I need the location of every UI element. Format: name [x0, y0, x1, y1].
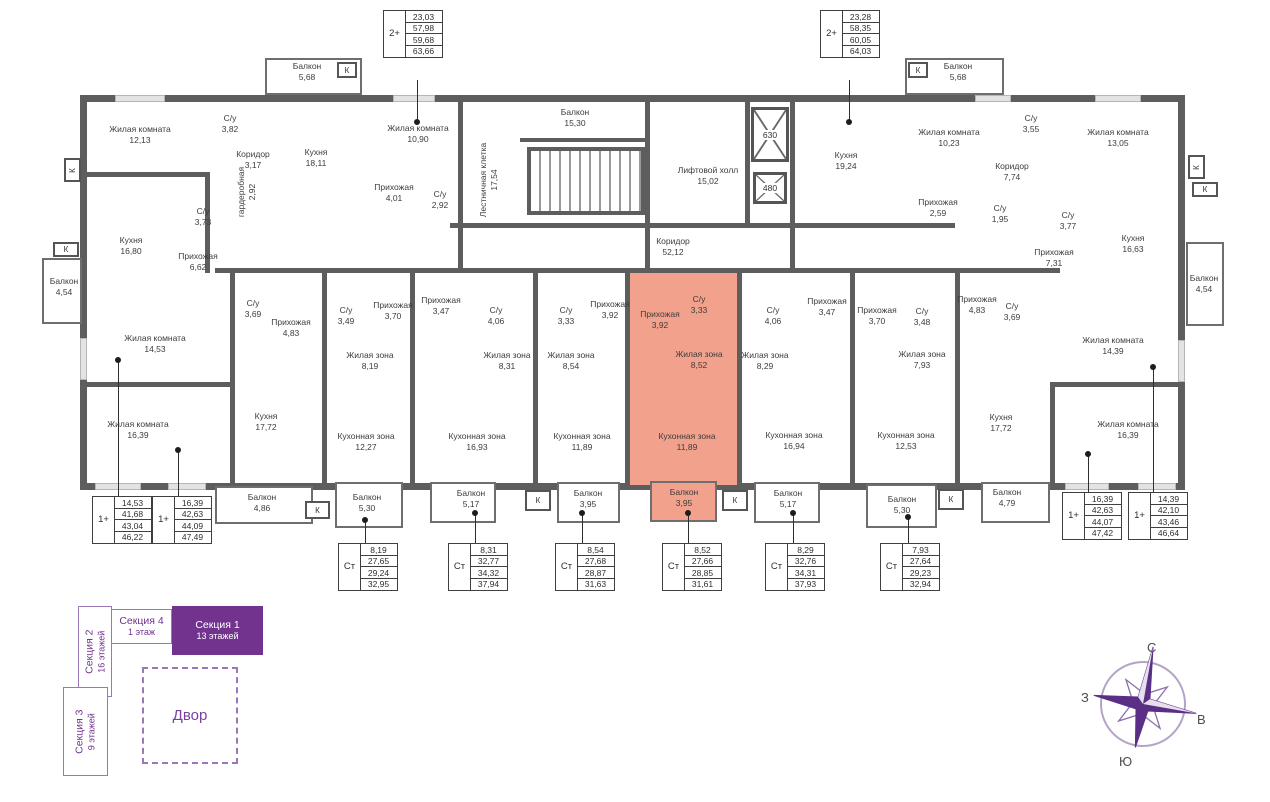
- wall: [450, 223, 955, 228]
- room-area: 16,39: [1097, 430, 1158, 441]
- section-floors: 1 этаж: [128, 627, 155, 637]
- room-kitchen-zone: Кухонная зона16,94: [765, 430, 822, 452]
- ac-unit-label: К: [536, 496, 541, 505]
- room-living-zone: Жилая зона8,29: [741, 350, 788, 372]
- room-name: Жилая комната: [107, 419, 168, 430]
- room-name: Кухня: [255, 411, 278, 422]
- ac-unit-label: К: [64, 245, 69, 254]
- room-area: 3,95: [574, 499, 603, 510]
- room-name: Лестничная клетка: [478, 143, 489, 217]
- leader-line: [417, 80, 418, 122]
- room-area: 4,06: [765, 316, 782, 327]
- room-area: 12,13: [109, 135, 170, 146]
- room-wc: С/у4,06: [765, 305, 782, 327]
- card-value: 46,64: [1150, 527, 1188, 540]
- ac-unit-label: К: [315, 506, 320, 515]
- room-kitchen: Кухня16,80: [120, 235, 143, 257]
- wall: [458, 95, 463, 270]
- window: [1095, 95, 1141, 102]
- room-area: 3,47: [421, 306, 460, 317]
- room-area: 7,31: [1034, 258, 1073, 269]
- ac-unit-label: К: [916, 66, 921, 75]
- leader-dot: [685, 510, 691, 516]
- window: [393, 95, 435, 102]
- room-living-2: Жилая комната10,90: [387, 123, 448, 145]
- room-name: Прихожая: [807, 296, 846, 307]
- wall: [790, 95, 795, 270]
- room-area: 8,52: [675, 360, 722, 371]
- room-area: 15,30: [561, 118, 590, 129]
- room-area: 3,33: [558, 316, 575, 327]
- leader-line: [849, 80, 850, 122]
- room-balcony: Балкон5,30: [888, 494, 917, 516]
- card-type: 1+: [92, 496, 115, 544]
- room-area: 13,05: [1087, 138, 1148, 149]
- room-name: Кухонная зона: [658, 431, 715, 442]
- room-area: 16,39: [107, 430, 168, 441]
- room-area: 3,77: [1060, 221, 1077, 232]
- room-area: 4,83: [271, 328, 310, 339]
- section-name: Секция 4: [119, 615, 163, 628]
- compass-north-label: С: [1147, 640, 1156, 655]
- card-type: 2+: [383, 10, 406, 58]
- ac-unit-box: К: [53, 242, 79, 257]
- room-area: 3,95: [670, 498, 699, 509]
- room-name: Жилая комната: [918, 127, 979, 138]
- room-area: 8,54: [547, 361, 594, 372]
- room-area: 14,39: [1082, 346, 1143, 357]
- room-area: 5,68: [944, 72, 973, 83]
- room-area: 3,33: [691, 305, 708, 316]
- compass-west-label: З: [1081, 690, 1089, 705]
- room-area: 5,30: [888, 505, 917, 516]
- room-area: 3,82: [222, 124, 239, 135]
- room-wc: С/у2,92: [432, 189, 449, 211]
- room-hall: Прихожая3,70: [857, 305, 896, 327]
- card-value: 31,61: [684, 578, 722, 591]
- site-section-1-active[interactable]: Секция 113 этажей: [172, 606, 263, 655]
- room-name: С/у: [691, 294, 708, 305]
- room-balcony: Балкон3,95: [574, 488, 603, 510]
- window: [975, 95, 1011, 102]
- leader-line: [365, 520, 366, 545]
- room-area: 52,12: [656, 247, 690, 258]
- room-area: 12,53: [877, 441, 934, 452]
- room-area: 17,72: [990, 423, 1013, 434]
- room-kitchen: Кухня19,24: [835, 150, 858, 172]
- room-hall: Прихожая3,92: [590, 299, 629, 321]
- window: [115, 95, 165, 102]
- room-main-corridor: Коридор52,12: [656, 236, 690, 258]
- room-name: Прихожая: [1034, 247, 1073, 258]
- compass-rose: С В Ю З: [1075, 632, 1225, 782]
- room-name: Жилая комната: [1097, 419, 1158, 430]
- room-area: 11,89: [553, 442, 610, 453]
- room-area: 6,62: [178, 262, 217, 273]
- room-area: 19,24: [835, 161, 858, 172]
- room-area: 4,54: [1190, 284, 1219, 295]
- card-1plus-br2[interactable]: 1+14,3942,1043,4646,64: [1128, 492, 1188, 540]
- room-area: 4,83: [957, 305, 996, 316]
- floor-plan-canvas: К К К К К К К К К К 630 480 Жилая комнат…: [0, 0, 1270, 802]
- room-living: Жилая комната16,39: [107, 419, 168, 441]
- room-name: Кухня: [835, 150, 858, 161]
- window: [80, 338, 87, 380]
- compass-east-label: В: [1197, 712, 1206, 727]
- room-wc: С/у3,69: [245, 298, 262, 320]
- room-wc: С/у3,49: [338, 305, 355, 327]
- room-area: 2,92: [247, 167, 258, 217]
- site-section-3[interactable]: Секция 39 этажей: [63, 687, 108, 776]
- room-name: Прихожая: [373, 300, 412, 311]
- room-wc: С/у3,82: [222, 113, 239, 135]
- leader-dot: [115, 357, 121, 363]
- room-name: Прихожая: [957, 294, 996, 305]
- room-name: Балкон: [457, 488, 486, 499]
- room-name: Балкон: [993, 487, 1022, 498]
- ac-unit-box: К: [337, 62, 357, 78]
- room-area: 4,06: [488, 316, 505, 327]
- room-living: Жилая комната16,39: [1097, 419, 1158, 441]
- wall: [215, 268, 1060, 273]
- courtyard-label: Двор: [173, 707, 208, 725]
- room-name: Жилая зона: [346, 350, 393, 361]
- card-studio-1[interactable]: Ст8,1927,6529,2432,95: [338, 543, 398, 591]
- room-name: Балкон: [944, 61, 973, 72]
- elevator-small: 480: [753, 172, 787, 204]
- room-name: С/у: [1023, 113, 1040, 124]
- room-name: Кухня: [305, 147, 328, 158]
- card-value: 32,95: [360, 578, 398, 591]
- ac-unit-label: К: [1192, 165, 1201, 170]
- room-area: 17,54: [489, 143, 500, 217]
- room-area: 10,90: [387, 134, 448, 145]
- room-kitchen-zone-selected: Кухонная зона11,89: [658, 431, 715, 453]
- room-area: 16,93: [448, 442, 505, 453]
- card-1plus-br1[interactable]: 1+16,3942,6344,0747,42: [1062, 492, 1122, 540]
- room-kitchen-zone: Кухонная зона16,93: [448, 431, 505, 453]
- room-living-1: Жилая комната12,13: [109, 124, 170, 146]
- room-area: 12,27: [337, 442, 394, 453]
- room-name: Кухонная зона: [337, 431, 394, 442]
- room-name: С/у: [914, 306, 931, 317]
- room-name: Кухонная зона: [877, 430, 934, 441]
- room-name: Коридор: [995, 161, 1029, 172]
- room-name: Балкон: [670, 487, 699, 498]
- room-wc-selected: С/у3,33: [691, 294, 708, 316]
- card-studio-6[interactable]: Ст7,9327,6429,2332,94: [880, 543, 940, 591]
- room-name: Балкон: [353, 492, 382, 503]
- room-wc: С/у3,48: [914, 306, 931, 328]
- section-name: Секция 3: [74, 709, 87, 753]
- window: [1138, 483, 1176, 490]
- card-studio-2[interactable]: Ст8,3132,7734,3237,94: [448, 543, 508, 591]
- site-section-2[interactable]: Секция 216 этажей: [78, 606, 112, 697]
- room-staircase: Лестничная клетка17,54: [478, 143, 500, 217]
- room-name: Прихожая: [857, 305, 896, 316]
- room-hall: Прихожая3,47: [421, 295, 460, 317]
- room-area: 8,19: [346, 361, 393, 372]
- room-name: Кухня: [1122, 233, 1145, 244]
- room-hall-selected: Прихожая3,92: [640, 309, 679, 331]
- ac-unit-box: К: [525, 490, 551, 511]
- room-area: 4,01: [374, 193, 413, 204]
- room-area: 5,30: [353, 503, 382, 514]
- leader-dot: [472, 510, 478, 516]
- leader-line: [582, 513, 583, 545]
- elevator-large: 630: [751, 107, 789, 162]
- card-type: Ст: [448, 543, 471, 591]
- room-name: Кухонная зона: [448, 431, 505, 442]
- room-living-zone: Жилая зона7,93: [898, 349, 945, 371]
- room-name: Жилая комната: [124, 333, 185, 344]
- leader-dot: [905, 514, 911, 520]
- room-area: 16,63: [1122, 244, 1145, 255]
- room-area: 16,80: [120, 246, 143, 257]
- room-kitchen-zone: Кухонная зона11,89: [553, 431, 610, 453]
- leader-dot: [579, 510, 585, 516]
- ac-unit-box: К: [722, 490, 748, 511]
- room-area: 3,55: [1023, 124, 1040, 135]
- card-value: 64,03: [842, 45, 880, 58]
- room-name: Жилая зона: [898, 349, 945, 360]
- room-living: Жилая комната13,05: [1087, 127, 1148, 149]
- card-value: 47,42: [1084, 527, 1122, 540]
- ac-unit-label: К: [68, 168, 77, 173]
- room-wc: С/у1,95: [992, 203, 1009, 225]
- card-studio-3[interactable]: Ст8,5427,6828,8731,63: [555, 543, 615, 591]
- room-area: 5,17: [457, 499, 486, 510]
- leader-line: [178, 450, 179, 497]
- card-studio-5[interactable]: Ст8,2932,7634,3137,93: [765, 543, 825, 591]
- room-name: Балкон: [248, 492, 277, 503]
- room-area: 3,92: [640, 320, 679, 331]
- window: [1178, 340, 1185, 382]
- window: [168, 483, 206, 490]
- room-name: Коридор: [236, 149, 270, 160]
- room-hall: Прихожая2,59: [918, 197, 957, 219]
- card-value: 63,66: [405, 45, 443, 58]
- room-living: Жилая комната14,53: [124, 333, 185, 355]
- room-area: 8,31: [483, 361, 530, 372]
- room-name: Жилая комната: [1087, 127, 1148, 138]
- room-name: Прихожая: [271, 317, 310, 328]
- wall: [850, 268, 855, 486]
- card-type: 1+: [152, 496, 175, 544]
- window: [1065, 483, 1109, 490]
- card-value: 47,49: [174, 531, 212, 544]
- section-name: Секция 1: [195, 619, 239, 632]
- room-hall: Прихожая4,01: [374, 182, 413, 204]
- room-balcony: Балкон4,54: [1190, 273, 1219, 295]
- wall: [520, 138, 647, 142]
- leader-line: [118, 360, 119, 497]
- room-name: Кухня: [990, 412, 1013, 423]
- leader-dot: [1085, 451, 1091, 457]
- room-area: 16,94: [765, 441, 822, 452]
- room-name: С/у: [488, 305, 505, 316]
- wall: [737, 268, 742, 486]
- section-name: Секция 2: [83, 629, 96, 673]
- room-balcony: Балкон5,68: [293, 61, 322, 83]
- site-courtyard: Двор: [142, 667, 238, 764]
- room-kitchen: Кухня16,63: [1122, 233, 1145, 255]
- room-area: 5,17: [774, 499, 803, 510]
- ac-unit-box: К: [1192, 182, 1218, 197]
- room-name: Кухонная зона: [553, 431, 610, 442]
- room-kitchen: Кухня17,72: [255, 411, 278, 433]
- room-area: 3,92: [590, 310, 629, 321]
- room-area: 7,93: [898, 360, 945, 371]
- room-balcony: Балкон4,54: [50, 276, 79, 298]
- room-name: С/у: [992, 203, 1009, 214]
- leader-dot: [1150, 364, 1156, 370]
- room-area: 3,70: [857, 316, 896, 327]
- room-area: 4,54: [50, 287, 79, 298]
- room-name: гардеробная: [236, 167, 247, 217]
- room-balcony: Балкон5,17: [457, 488, 486, 510]
- room-wc: С/у3,77: [1060, 210, 1077, 232]
- room-name: С/у: [195, 206, 212, 217]
- room-wc: С/у3,55: [1023, 113, 1040, 135]
- room-corridor: Коридор7,74: [995, 161, 1029, 183]
- card-1plus-bl2[interactable]: 1+16,3942,6344,0947,49: [152, 496, 212, 544]
- room-area: 3,69: [1004, 312, 1021, 323]
- compass-south-label: Ю: [1119, 754, 1132, 769]
- room-area: 3,48: [914, 317, 931, 328]
- room-area: 3,69: [245, 309, 262, 320]
- room-name: Балкон: [574, 488, 603, 499]
- room-wc: С/у4,06: [488, 305, 505, 327]
- room-name: Прихожая: [590, 299, 629, 310]
- room-living: Жилая комната14,39: [1082, 335, 1143, 357]
- leader-line: [688, 513, 689, 545]
- ac-unit-label: К: [949, 495, 954, 504]
- room-hall: Прихожая3,70: [373, 300, 412, 322]
- room-name: Жилая комната: [109, 124, 170, 135]
- room-name: С/у: [1004, 301, 1021, 312]
- room-name: Прихожая: [640, 309, 679, 320]
- room-wc: С/у3,73: [195, 206, 212, 228]
- room-area: 3,49: [338, 316, 355, 327]
- room-wardrobe: гардеробная2,92: [236, 167, 258, 217]
- wall: [645, 95, 650, 270]
- room-hall: Прихожая6,62: [178, 251, 217, 273]
- leader-line: [908, 517, 909, 545]
- room-area: 18,11: [305, 158, 328, 169]
- card-value: 32,94: [902, 578, 940, 591]
- room-balcony: Балкон5,17: [774, 488, 803, 510]
- ac-unit-box: К: [908, 62, 928, 78]
- room-area: 15,02: [678, 176, 739, 187]
- card-2plus-right[interactable]: 2+23,2858,3560,0564,03: [820, 10, 880, 58]
- room-name: С/у: [432, 189, 449, 200]
- card-value: 31,63: [577, 578, 615, 591]
- room-living-zone: Жилая зона8,19: [346, 350, 393, 372]
- room-name: Балкон: [1190, 273, 1219, 284]
- card-type: Ст: [338, 543, 361, 591]
- wall: [1050, 382, 1055, 486]
- room-name: С/у: [245, 298, 262, 309]
- room-name: Балкон: [561, 107, 590, 118]
- room-name: Прихожая: [918, 197, 957, 208]
- card-type: Ст: [765, 543, 788, 591]
- room-area: 3,73: [195, 217, 212, 228]
- room-living-zone-selected: Жилая зона8,52: [675, 349, 722, 371]
- room-balcony: Балкон5,30: [353, 492, 382, 514]
- site-section-4[interactable]: Секция 41 этаж: [111, 609, 172, 644]
- leader-dot: [362, 517, 368, 523]
- room-area: 5,68: [293, 72, 322, 83]
- room-hall: Прихожая3,47: [807, 296, 846, 318]
- card-studio-selected[interactable]: Ст8,5227,6628,8531,61: [662, 543, 722, 591]
- wall: [80, 172, 205, 177]
- section-floors: 13 этажей: [197, 631, 239, 641]
- card-type: 1+: [1128, 492, 1151, 540]
- leader-dot: [175, 447, 181, 453]
- staircase: [527, 147, 645, 215]
- room-name: Балкон: [50, 276, 79, 287]
- room-area: 4,86: [248, 503, 277, 514]
- room-hall: Прихожая4,83: [271, 317, 310, 339]
- room-name: Балкон: [293, 61, 322, 72]
- room-name: Прихожая: [374, 182, 413, 193]
- room-name: С/у: [338, 305, 355, 316]
- card-type: Ст: [662, 543, 685, 591]
- room-kitchen: Кухня17,72: [990, 412, 1013, 434]
- room-balcony: Балкон4,86: [248, 492, 277, 514]
- room-name: Жилая зона: [741, 350, 788, 361]
- room-kitchen-zone: Кухонная зона12,53: [877, 430, 934, 452]
- room-balcony: Балкон4,79: [993, 487, 1022, 509]
- room-name: Прихожая: [178, 251, 217, 262]
- room-area: 3,47: [807, 307, 846, 318]
- room-name: Балкон: [774, 488, 803, 499]
- room-area: 1,95: [992, 214, 1009, 225]
- wall: [533, 268, 538, 486]
- leader-dot: [414, 119, 420, 125]
- room-living-zone: Жилая зона8,54: [547, 350, 594, 372]
- room-name: Жилая зона: [675, 349, 722, 360]
- room-wc: С/у3,69: [1004, 301, 1021, 323]
- ac-unit-box: К: [305, 501, 330, 519]
- room-area: 2,92: [432, 200, 449, 211]
- room-hall: Прихожая7,31: [1034, 247, 1073, 269]
- room-area: 8,29: [741, 361, 788, 372]
- elevator-capacity: 480: [762, 183, 778, 193]
- room-living-zone: Жилая зона8,31: [483, 350, 530, 372]
- room-name: Коридор: [656, 236, 690, 247]
- room-area: 10,23: [918, 138, 979, 149]
- card-value: 37,94: [470, 578, 508, 591]
- ac-unit-box: К: [64, 158, 81, 182]
- room-name: Лифтовой холл: [678, 165, 739, 176]
- card-type: 2+: [820, 10, 843, 58]
- room-name: Балкон: [888, 494, 917, 505]
- card-1plus-bl1[interactable]: 1+14,5341,6843,0446,22: [92, 496, 152, 544]
- leader-dot: [790, 510, 796, 516]
- room-area: 11,89: [658, 442, 715, 453]
- room-area: 14,53: [124, 344, 185, 355]
- elevator-capacity: 630: [762, 130, 778, 140]
- card-2plus-left[interactable]: 2+23,0357,9859,6863,66: [383, 10, 443, 58]
- leader-line: [475, 513, 476, 545]
- leader-line: [1088, 454, 1089, 493]
- ac-unit-label: К: [345, 66, 350, 75]
- room-kitchen-zone: Кухонная зона12,27: [337, 431, 394, 453]
- room-name: С/у: [558, 305, 575, 316]
- ac-unit-box: К: [938, 489, 964, 510]
